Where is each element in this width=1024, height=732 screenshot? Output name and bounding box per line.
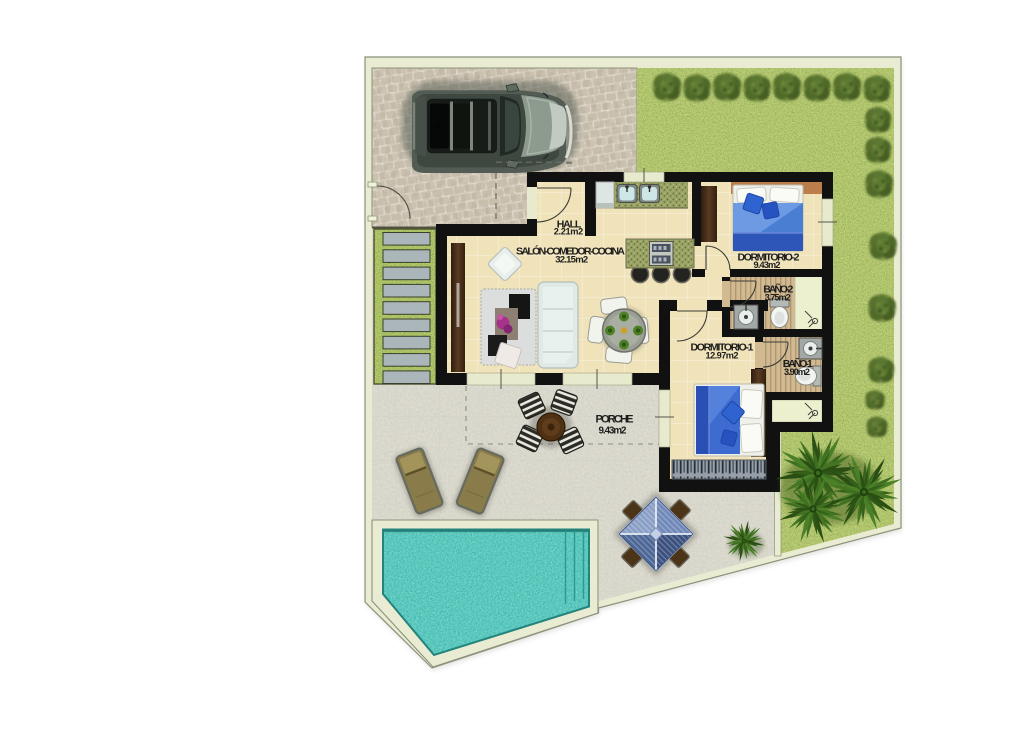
svg-text:3.90m2: 3.90m2 [784, 367, 810, 377]
svg-text:9.43m2: 9.43m2 [599, 425, 628, 436]
svg-text:12.97m2: 12.97m2 [706, 350, 739, 360]
svg-text:32.15m2: 32.15m2 [555, 255, 588, 266]
svg-text:9.43m2: 9.43m2 [754, 260, 781, 270]
svg-text:2.21m2: 2.21m2 [554, 227, 584, 237]
svg-text:PORCHE: PORCHE [596, 413, 634, 425]
svg-text:3.75m2: 3.75m2 [765, 292, 791, 302]
